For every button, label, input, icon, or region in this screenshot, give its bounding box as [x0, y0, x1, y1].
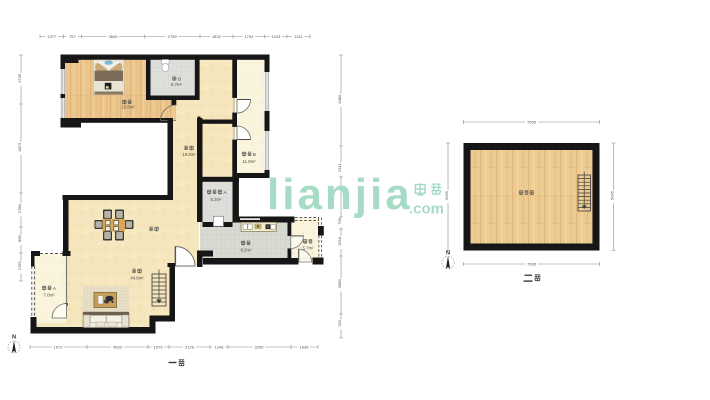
svg-text:757: 757	[69, 34, 76, 39]
svg-text:1832: 1832	[212, 34, 222, 39]
svg-text:16.5m²: 16.5m²	[121, 105, 135, 110]
svg-text:9.2m²: 9.2m²	[241, 248, 253, 253]
svg-text:1377: 1377	[47, 34, 57, 39]
svg-text:3218: 3218	[337, 236, 342, 246]
svg-text:N: N	[446, 251, 450, 257]
svg-text:5095: 5095	[610, 190, 615, 200]
svg-text:.com: .com	[409, 201, 444, 218]
svg-text:lianjia: lianjia	[267, 170, 413, 219]
svg-text:19.2m²: 19.2m²	[182, 152, 196, 157]
svg-text:44.6m²: 44.6m²	[130, 275, 144, 280]
svg-text:5.3m²: 5.3m²	[211, 197, 223, 202]
svg-text:4533: 4533	[113, 345, 123, 350]
svg-text:11.0m²: 11.0m²	[242, 159, 256, 164]
svg-text:1246: 1246	[215, 345, 225, 350]
svg-text:5095: 5095	[444, 190, 449, 200]
svg-text:2745: 2745	[17, 73, 22, 83]
svg-text:7.0m²: 7.0m²	[44, 293, 56, 298]
svg-text:1211: 1211	[294, 34, 303, 39]
svg-text:B: B	[253, 152, 256, 158]
svg-text:4873: 4873	[17, 142, 22, 152]
svg-text:1243: 1243	[271, 34, 281, 39]
svg-text:2788: 2788	[17, 203, 22, 213]
svg-text:2789: 2789	[17, 260, 22, 270]
svg-text:2759: 2759	[168, 34, 178, 39]
svg-text:1704: 1704	[244, 34, 254, 39]
svg-text:5.7m²: 5.7m²	[171, 82, 183, 87]
svg-text:592: 592	[337, 319, 342, 326]
svg-text:N: N	[12, 335, 16, 341]
svg-text:7695: 7695	[527, 120, 537, 125]
svg-text:1638: 1638	[300, 345, 310, 350]
svg-text:2888: 2888	[337, 278, 342, 288]
svg-text:6480: 6480	[337, 94, 342, 104]
svg-text:3649: 3649	[109, 34, 119, 39]
svg-text:2126: 2126	[185, 345, 195, 350]
svg-text:1672: 1672	[54, 345, 64, 350]
svg-text:1079: 1079	[154, 345, 164, 350]
svg-text:5.7m²: 5.7m²	[303, 246, 315, 251]
svg-text:7695: 7695	[527, 262, 537, 267]
svg-text:3206: 3206	[255, 345, 265, 350]
svg-text:808: 808	[17, 235, 22, 242]
svg-text:B: B	[178, 76, 181, 81]
